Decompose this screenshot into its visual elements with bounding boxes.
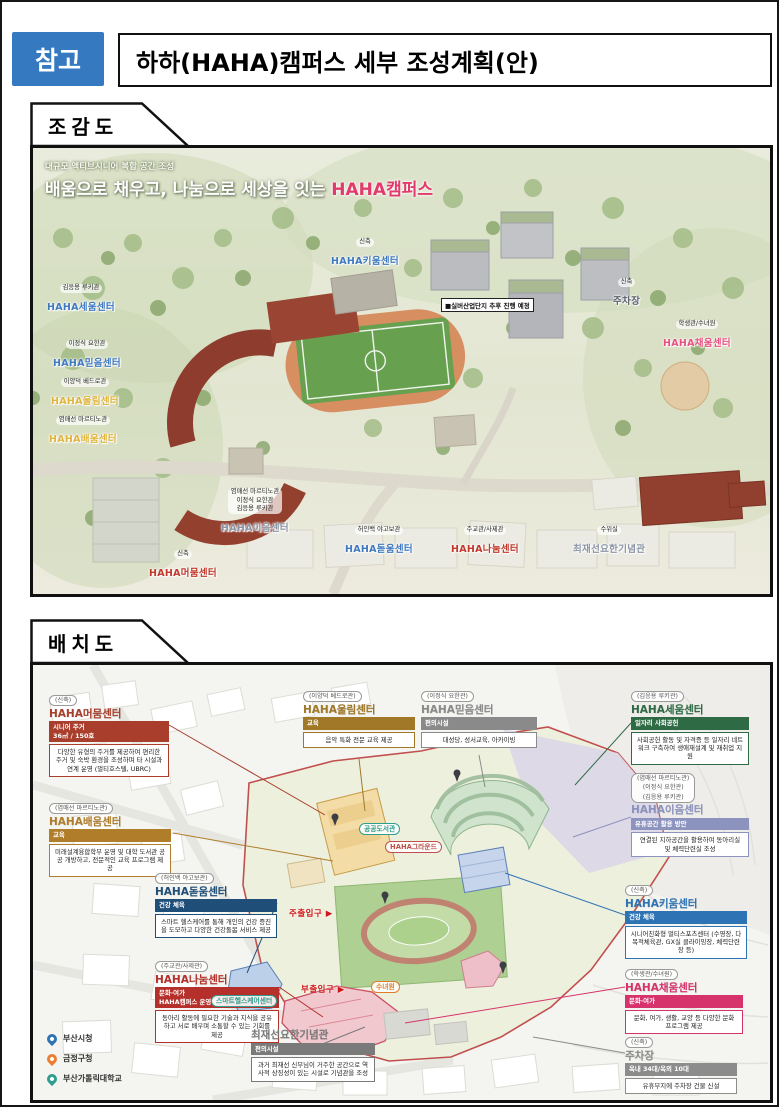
aerial-label-chaeum-center: 학생관/수녀원 HAHA채움센터 bbox=[663, 310, 731, 352]
card-ieum-center: (염매선 마르티노관) (이정식 요한관) (김응용 루키관) HAHA이음센터… bbox=[631, 773, 749, 857]
map-pin-icon bbox=[45, 1071, 59, 1085]
aerial-label-kium-center: 신축 HAHA키움센터 bbox=[331, 228, 399, 270]
haha-ground-label: HAHA그라운드 bbox=[385, 841, 442, 853]
aerial-label-dodum-center: 허인백 야고보관 HAHA돋움센터 bbox=[345, 516, 413, 558]
aerial-label-ullim-center: 이양덕 베드로관 HAHA울림센터 bbox=[51, 368, 119, 410]
aerial-headline: 배움으로 채우고, 나눔으로 세상을 잇는 HAHA캠퍼스 bbox=[45, 175, 433, 200]
aerial-label-mideum-center: 이정식 요한관 HAHA믿음센터 bbox=[53, 330, 121, 372]
card-memorial-hall: 최재선요한기념관 편의시설 과거 최재선 신부님이 거주한 공간으로 역사적 상… bbox=[251, 1029, 375, 1082]
card-seum-center: (김응용 루키관) HAHA세움센터 일자리 사회공헌 사회공헌 활동 및 자격… bbox=[631, 683, 749, 765]
map-pin-icon bbox=[45, 1031, 59, 1045]
section-tab-layout-label: 배치도 bbox=[48, 628, 118, 657]
aerial-headline-highlight: HAHA캠퍼스 bbox=[331, 180, 433, 200]
aerial-label-meomum-center: 신축 HAHA머뭄센터 bbox=[149, 540, 217, 582]
legend-item-busan-city-hall: 부산시청 bbox=[47, 1033, 122, 1044]
legend-label: 부산시청 bbox=[63, 1033, 92, 1044]
card-meomum-center: (신축) HAHA머뭄센터 시니어 주거 36㎡ / 150호 다양한 유형의 … bbox=[49, 687, 169, 777]
legend-label: 부산가톨릭대학교 bbox=[63, 1073, 122, 1084]
aerial-label-ieum-center: 염매선 마르티노관 이정식 요한관 김응용 루키관 HAHA이음센터 bbox=[221, 488, 289, 537]
aerial-label-parking: 신축 주차장 bbox=[613, 268, 640, 310]
legend-item-geumjeong-gu-office: 금정구청 bbox=[47, 1053, 122, 1064]
legend-label: 금정구청 bbox=[63, 1053, 92, 1064]
card-kium-center: (신축) HAHA키움센터 건강 체육 시니어친화형 멀티스포츠센터 (수영장,… bbox=[625, 877, 747, 959]
card-ullim-center: (이양덕 베드로관) HAHA울림센터 교육 음악 특화 전문 교육 제공 bbox=[303, 683, 415, 748]
public-library-label: 공공도서관 bbox=[359, 823, 400, 835]
aerial-headline-prefix: 배움으로 채우고, 나눔으로 세상을 잇는 bbox=[45, 180, 331, 200]
reference-badge: 참고 bbox=[12, 32, 104, 86]
aerial-subtitle: 대규모 액티브시니어 복합 공간 조성 bbox=[45, 160, 174, 172]
section-tab-layout: 배치도 bbox=[30, 619, 200, 665]
aerial-label-baeum-center: 염매선 마르티노관 HAHA배움센터 bbox=[49, 406, 117, 448]
map-legend: 부산시청 금정구청 부산가톨릭대학교 bbox=[47, 1033, 122, 1093]
card-parking: (신축) 주차장 옥내 34대/옥외 10대 유휴부지에 주차장 건물 신설 bbox=[625, 1029, 737, 1094]
map-pin-icon bbox=[45, 1051, 59, 1065]
legend-item-catholic-university: 부산가톨릭대학교 bbox=[47, 1073, 122, 1084]
aerial-label-nanum-center: 주교관/사제관 HAHA나눔센터 bbox=[451, 516, 519, 558]
card-chaeum-center: (학생관/수녀원) HAHA채움센터 문화·여가 문화, 여가, 생활, 교양 … bbox=[625, 961, 743, 1034]
main-entrance-label: 주출입구 ▶ bbox=[289, 907, 333, 919]
card-baeum-center: (염매선 마르티노관) HAHA배움센터 교육 미래설계융합학부 운영 및 대학… bbox=[49, 795, 171, 877]
aerial-view-figure: 대규모 액티브시니어 복합 공간 조성 배움으로 채우고, 나눔으로 세상을 잇… bbox=[30, 145, 773, 597]
aerial-label-memorial-hall: 수위실 최재선요한기념관 bbox=[573, 516, 645, 558]
document-page: 참고 하하(HAHA)캠퍼스 세부 조성계획(안) 조감도 bbox=[0, 0, 779, 1107]
aerial-note-silver-complex: ■실버산업단지 추후 진행 예정 bbox=[441, 298, 534, 312]
section-tab-aerial-label: 조감도 bbox=[48, 111, 118, 140]
page-title: 하하(HAHA)캠퍼스 세부 조성계획(안) bbox=[118, 33, 772, 87]
layout-map-figure: (신축) HAHA머뭄센터 시니어 주거 36㎡ / 150호 다양한 유형의 … bbox=[30, 662, 773, 1103]
sub-entrance-label: 부출입구 ▶ bbox=[301, 983, 345, 995]
card-mideum-center: (이정식 요한관) HAHA믿음센터 편의시설 대성당, 성서교육, 아카이빙 bbox=[421, 683, 537, 748]
smart-healthcare-label: 스마트헬스케어센터 bbox=[211, 995, 277, 1007]
aerial-label-seum-center: 김응용 루키관 HAHA세움센터 bbox=[47, 274, 115, 316]
card-dodum-center: (허인백 야고보관) HAHA돋움센터 건강 체육 스마트 헬스케어를 통해 개… bbox=[155, 865, 277, 938]
section-tab-aerial: 조감도 bbox=[30, 102, 200, 148]
convent-label: 수녀원 bbox=[371, 981, 400, 993]
